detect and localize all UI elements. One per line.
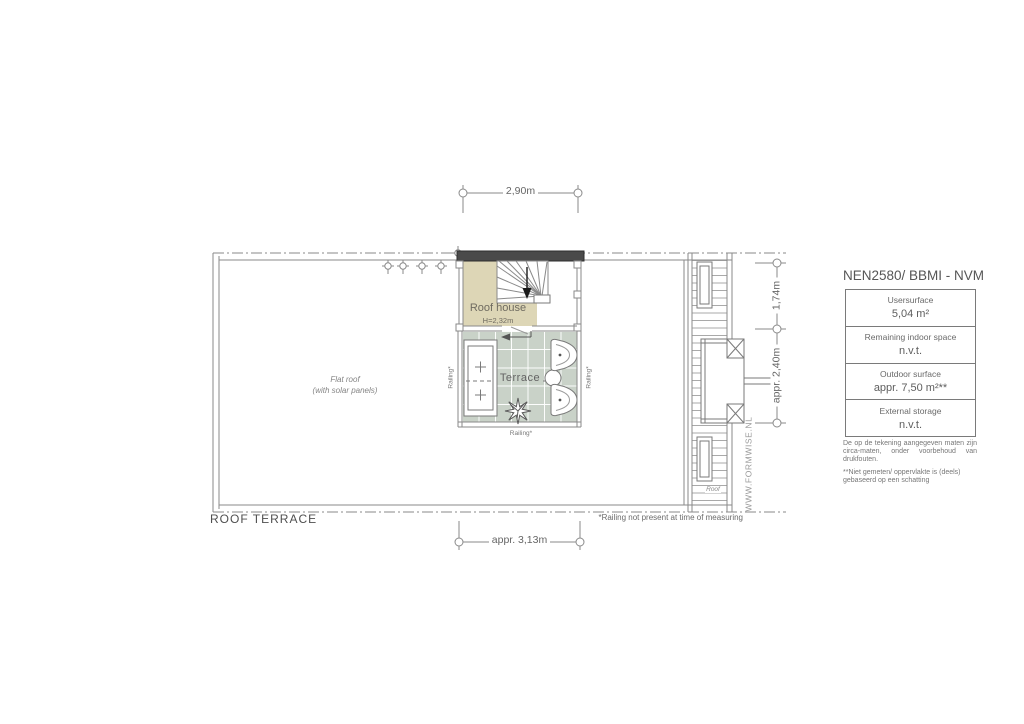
flat-roof-line1: Flat roof xyxy=(295,374,395,385)
legend-row-value: appr. 7,50 m²** xyxy=(874,382,947,394)
roof-house-height-label: H=2,32m xyxy=(458,317,538,325)
floorplan-page: 2,90m appr. 3,13m 1,74m appr. 2,40m Flat… xyxy=(0,0,1024,724)
legend-row-value: n.v.t. xyxy=(899,419,922,431)
legend-row-label: Remaining indoor space xyxy=(865,332,957,342)
legend-row-storage: External storage n.v.t. xyxy=(846,400,975,436)
legend-row-indoor: Remaining indoor space n.v.t. xyxy=(846,327,975,364)
legend-row-value: n.v.t. xyxy=(899,345,922,357)
dimension-right-upper-label: 1,74m xyxy=(771,271,782,321)
legend-title: NEN2580/ BBMI - NVM xyxy=(843,269,983,283)
legend-row-value: 5,04 m² xyxy=(892,308,929,320)
door-arrow xyxy=(501,327,531,341)
dimension-bottom-label: appr. 3,13m xyxy=(459,535,580,546)
roof-strip-label: Roof xyxy=(698,487,728,494)
railing-right-label: Railing* xyxy=(587,357,594,397)
legend-row-label: Outdoor surface xyxy=(880,369,941,379)
legend-row-label: Usersurface xyxy=(888,295,934,305)
legend-note-disclaimer: De op de tekening aangegeven maten zijn … xyxy=(843,440,977,464)
flat-roof-label: Flat roof (with solar panels) xyxy=(295,374,395,396)
chair-bottom xyxy=(551,384,577,415)
railing-left-label: Railing* xyxy=(449,357,456,397)
legend-row-usersurface: Usersurface 5,04 m² xyxy=(846,290,975,327)
chair-top xyxy=(551,339,577,370)
dimension-top-label: 2,90m xyxy=(463,186,578,197)
staircase xyxy=(497,261,550,303)
railing-footnote: *Railing not present at time of measurin… xyxy=(558,514,743,522)
page-title: ROOF TERRACE xyxy=(210,513,317,526)
legend-notes: De op de tekening aangegeven maten zijn … xyxy=(843,440,977,485)
watermark: WWW.FORMWISE.NL xyxy=(745,431,754,511)
plant xyxy=(505,398,531,424)
legend-row-label: External storage xyxy=(880,406,942,416)
terrace-label: Terrace xyxy=(490,373,550,385)
chimney-structure xyxy=(701,339,772,423)
flat-roof-line2: (with solar panels) xyxy=(295,385,395,396)
legend-note-estimate: **Niet gemeten/ oppervlakte is (deels) g… xyxy=(843,469,977,485)
roof-house-label: Roof house xyxy=(458,303,538,315)
railing-bottom-label: Railing* xyxy=(496,431,546,438)
legend-row-outdoor: Outdoor surface appr. 7,50 m²** xyxy=(846,364,975,401)
legend-table: Usersurface 5,04 m² Remaining indoor spa… xyxy=(845,289,976,437)
dimension-right-lower-label: appr. 2,40m xyxy=(771,341,782,411)
